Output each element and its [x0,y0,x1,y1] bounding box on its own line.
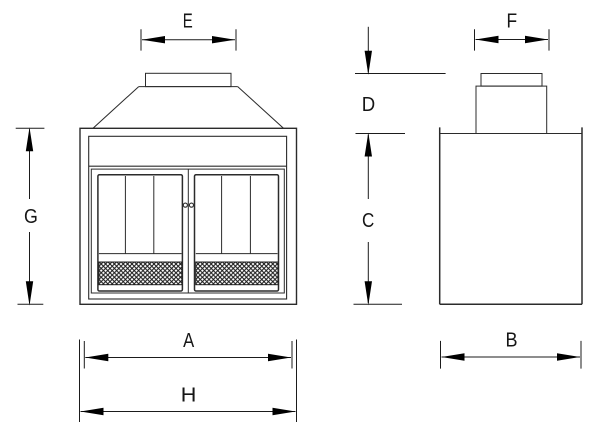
svg-text:E: E [183,10,193,33]
svg-text:H: H [181,384,197,406]
svg-text:G: G [24,206,38,228]
svg-text:C: C [362,209,374,232]
svg-text:A: A [183,329,195,352]
svg-text:B: B [505,330,517,352]
svg-text:D: D [362,94,375,116]
svg-text:F: F [506,10,517,32]
